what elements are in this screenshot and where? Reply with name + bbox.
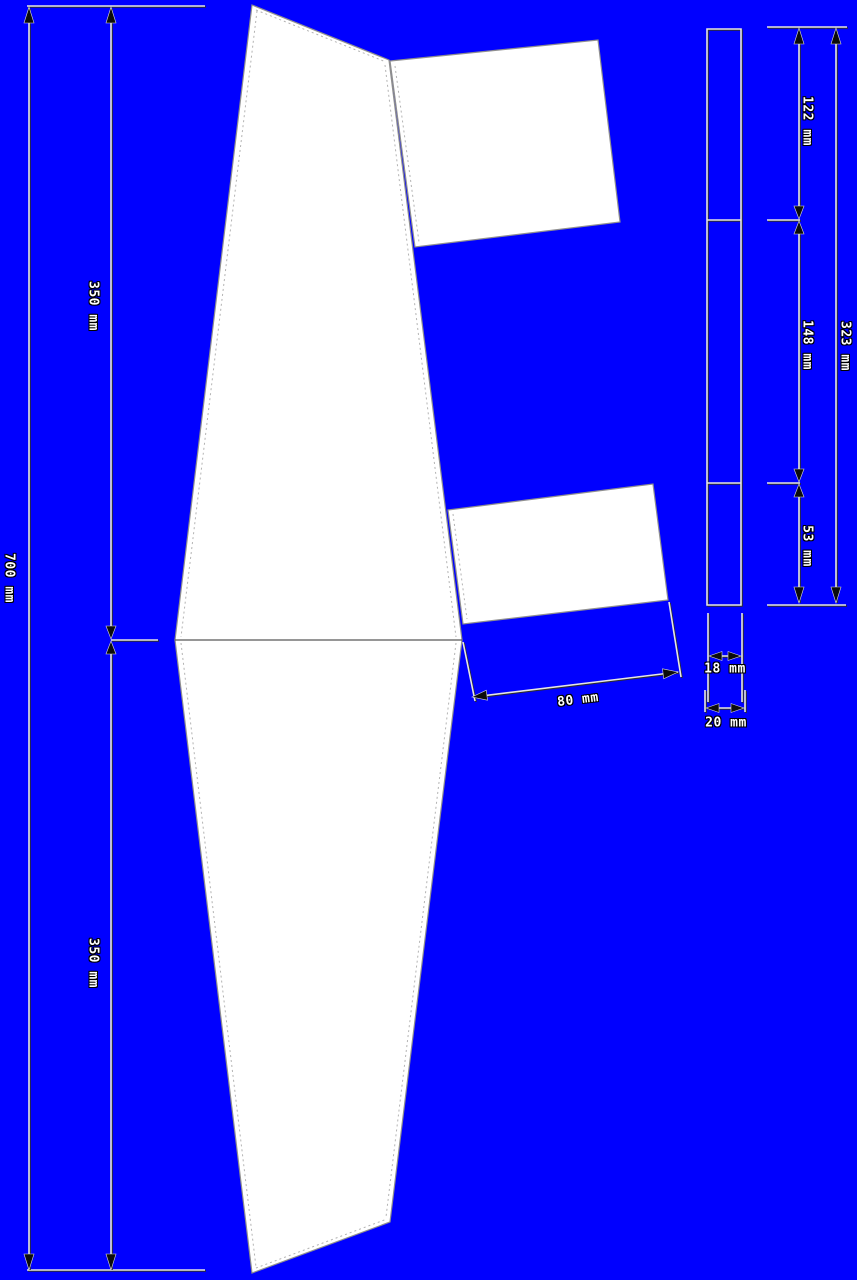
dim-label-strip-seg-top: 122 mm: [800, 96, 815, 146]
dim-label-strip-seg-mid: 148 mm: [800, 320, 815, 370]
dim-label-strip-width-inner: 18 mm: [704, 662, 746, 677]
dim-line-18mm: [708, 613, 743, 703]
dim-line-700mm: [24, 7, 34, 1270]
plan-drawing: [0, 0, 857, 1280]
dim-line-20mm: [705, 690, 746, 713]
dim-label-strip-total: 323 mm: [838, 321, 853, 371]
upper-flap-panel: [390, 40, 620, 247]
dim-line-323mm: [831, 28, 841, 603]
dim-label-span-upper: 350 mm: [86, 281, 101, 331]
dim-label-strip-width-outer: 20 mm: [705, 716, 747, 731]
dim-line-350mm-lower: [106, 641, 116, 1270]
spar-strip: [707, 29, 742, 606]
dim-label-strip-seg-bot: 53 mm: [800, 525, 815, 567]
lower-flap-panel: [448, 484, 668, 624]
dim-line-350mm-upper: [106, 7, 116, 639]
dim-label-span-total: 700 mm: [2, 553, 17, 603]
dim-label-span-lower: 350 mm: [86, 938, 101, 988]
drawing-canvas: 700 mm 350 mm 350 mm 122 mm 148 mm 53 mm…: [0, 0, 857, 1280]
